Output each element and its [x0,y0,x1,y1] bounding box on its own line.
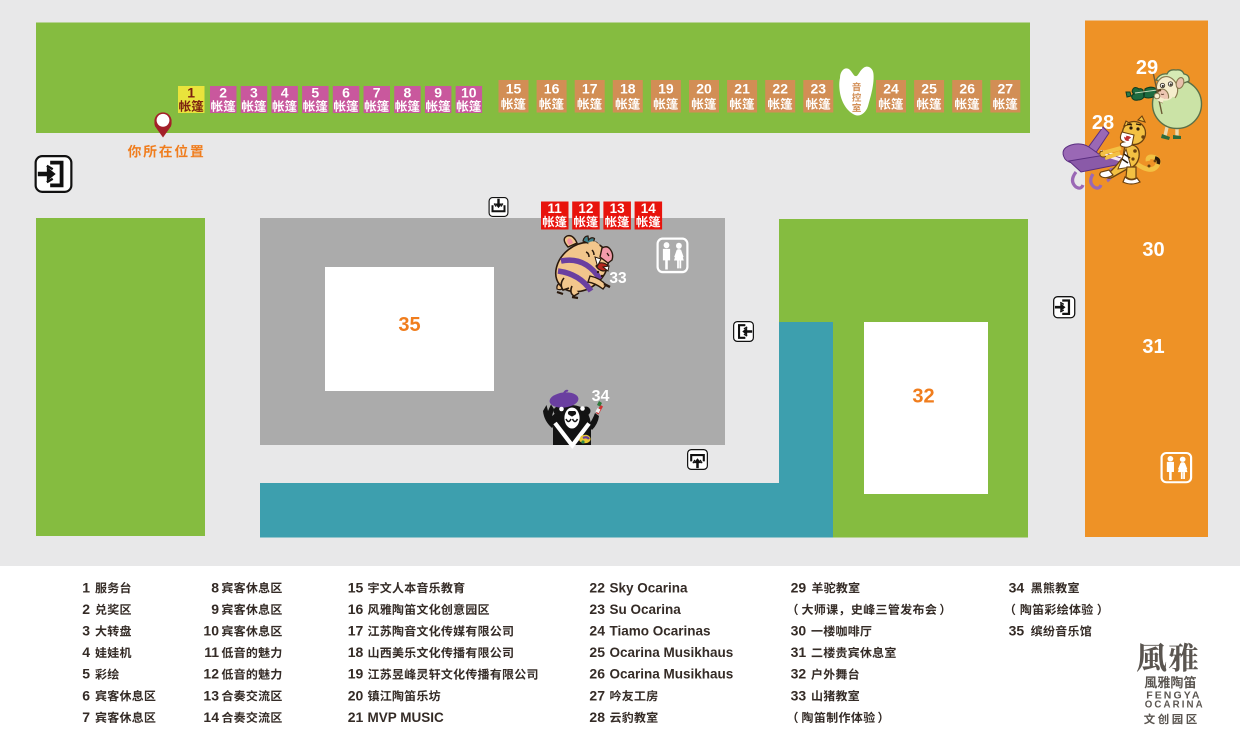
svg-text:23: 23 [589,601,605,617]
svg-text:31: 31 [1142,336,1164,358]
svg-text:26: 26 [589,666,605,682]
svg-text:24: 24 [883,81,899,97]
svg-text:33: 33 [609,270,627,287]
svg-text:4: 4 [82,644,90,660]
svg-text:Tiamo Ocarinas: Tiamo Ocarinas [610,624,711,639]
svg-text:Ocarina Musikhaus: Ocarina Musikhaus [610,645,734,660]
svg-text:30: 30 [791,623,807,639]
svg-text:10: 10 [461,85,477,101]
svg-text:6: 6 [342,85,350,101]
svg-text:34: 34 [1009,579,1025,595]
svg-text:20: 20 [348,687,364,703]
svg-text:8: 8 [211,579,219,595]
svg-text:26: 26 [959,81,975,97]
svg-text:27: 27 [998,81,1014,97]
svg-text:33: 33 [791,687,807,703]
svg-text:25: 25 [589,644,605,660]
svg-text:MVP MUSIC: MVP MUSIC [368,710,445,725]
svg-text:19: 19 [658,81,674,97]
svg-text:32: 32 [791,666,807,682]
svg-text:19: 19 [348,666,364,682]
svg-text:22: 22 [589,579,605,595]
svg-text:9: 9 [434,85,442,101]
svg-text:23: 23 [811,81,827,97]
svg-text:35: 35 [1009,623,1025,639]
svg-text:13: 13 [610,201,626,216]
svg-text:16: 16 [544,81,560,97]
svg-text:1: 1 [82,579,90,595]
svg-text:2: 2 [82,601,90,617]
svg-text:21: 21 [734,81,750,97]
svg-text:32: 32 [912,386,934,408]
svg-text:34: 34 [592,388,610,405]
svg-text:24: 24 [589,623,605,639]
svg-text:12: 12 [203,666,219,682]
svg-text:16: 16 [348,601,364,617]
svg-text:6: 6 [82,687,90,703]
svg-text:13: 13 [203,687,219,703]
svg-text:30: 30 [1142,239,1164,261]
svg-text:25: 25 [921,81,937,97]
svg-text:14: 14 [203,709,219,725]
svg-text:4: 4 [281,85,289,101]
svg-text:1: 1 [187,85,195,101]
svg-text:28: 28 [1092,112,1114,134]
svg-text:18: 18 [620,81,636,97]
svg-text:9: 9 [211,601,219,617]
svg-text:7: 7 [373,85,381,101]
svg-text:15: 15 [348,579,364,595]
svg-text:5: 5 [311,85,319,101]
svg-text:21: 21 [348,709,364,725]
svg-text:31: 31 [791,644,807,660]
svg-text:35: 35 [398,314,420,336]
svg-text:15: 15 [506,81,522,97]
svg-text:11: 11 [204,644,219,660]
svg-text:11: 11 [548,201,563,216]
svg-text:5: 5 [82,666,90,682]
svg-text:29: 29 [791,579,807,595]
svg-text:Su Ocarina: Su Ocarina [610,602,682,617]
svg-text:2: 2 [219,85,227,101]
svg-text:17: 17 [582,81,598,97]
svg-text:8: 8 [404,85,412,101]
svg-text:22: 22 [772,81,788,97]
svg-text:Ocarina Musikhaus: Ocarina Musikhaus [610,667,734,682]
svg-text:28: 28 [589,709,605,725]
svg-text:10: 10 [203,623,219,639]
svg-text:Sky Ocarina: Sky Ocarina [610,580,689,595]
svg-text:3: 3 [250,85,258,101]
svg-text:27: 27 [589,687,605,703]
svg-text:29: 29 [1136,57,1158,79]
svg-text:20: 20 [696,81,712,97]
svg-text:17: 17 [348,623,364,639]
svg-text:OCARINA: OCARINA [1145,700,1205,711]
svg-text:18: 18 [348,644,364,660]
svg-text:7: 7 [82,709,90,725]
svg-text:12: 12 [578,201,593,216]
svg-text:14: 14 [641,201,657,216]
svg-text:3: 3 [82,623,90,639]
